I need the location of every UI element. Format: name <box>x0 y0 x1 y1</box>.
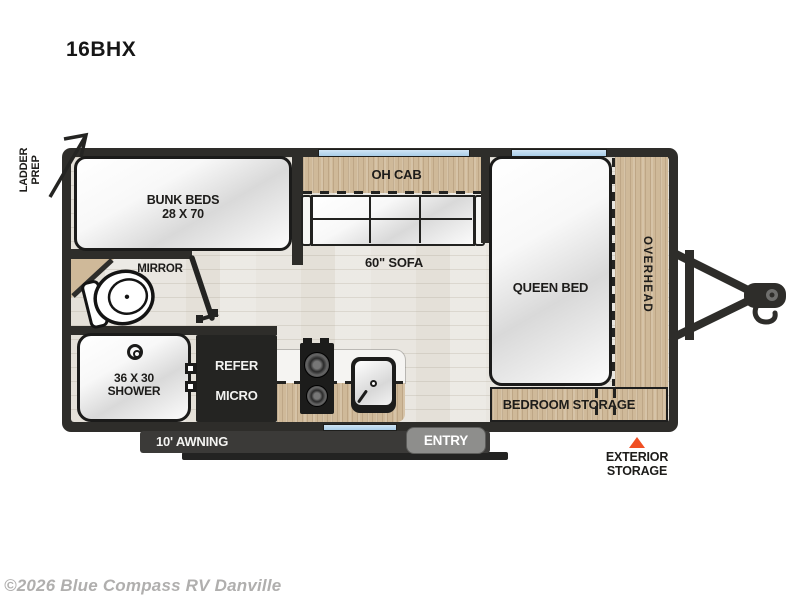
bedroom-storage: BEDROOM STORAGE <box>490 387 668 422</box>
window-sofa <box>318 149 470 157</box>
ladder-prep-label: LADDER PREP <box>18 142 46 198</box>
refer-label: REFER <box>196 359 277 374</box>
bunk-beds-line1: BUNK BEDS <box>77 193 289 207</box>
entry-door: ENTRY <box>406 427 486 454</box>
window-kitchen <box>323 424 397 431</box>
exterior-storage-line2: STORAGE <box>594 464 680 478</box>
sofa <box>311 195 475 246</box>
sofa-label: 60" SOFA <box>328 256 460 271</box>
entry-label: ENTRY <box>407 433 485 448</box>
ladder-prep-line2: PREP <box>30 142 42 198</box>
shower: 36 X 30 SHOWER <box>77 333 191 422</box>
refer-micro-cabinet: REFER MICRO <box>196 335 277 422</box>
exterior-storage-line1: EXTERIOR <box>594 450 680 464</box>
window-bedroom <box>511 149 607 157</box>
ladder-prep-line1: LADDER <box>18 142 30 198</box>
overhead-cabinet-sofa: OH CAB <box>303 157 490 193</box>
queen-bed: QUEEN BED <box>489 156 612 386</box>
queen-bed-label: QUEEN BED <box>492 281 609 296</box>
oh-cab-label: OH CAB <box>303 168 490 183</box>
watermark: ©2026 Blue Compass RV Danville <box>4 576 281 596</box>
bedroom-storage-label: BEDROOM STORAGE <box>494 398 644 413</box>
sink-icon <box>351 357 396 413</box>
hitch-icon <box>674 250 786 340</box>
mirror-label: MIRROR <box>120 263 200 276</box>
bunk-beds-line2: 28 X 70 <box>77 207 289 221</box>
overhead-label: OVERHEAD <box>631 185 653 365</box>
exterior-storage-label: EXTERIOR STORAGE <box>594 450 680 478</box>
page-title: 16BHX <box>66 38 136 62</box>
bunk-beds: BUNK BEDS 28 X 70 <box>74 156 292 251</box>
awning-label: 10' AWNING <box>156 435 228 450</box>
oh-cab-dashed-line <box>303 191 490 194</box>
exterior-storage-marker-icon <box>629 437 645 448</box>
shower-line2: SHOWER <box>80 385 188 398</box>
micro-label: MICRO <box>196 389 277 404</box>
floorplan-page: 16BHX LADDER PREP BUNK BEDS 28 X 70 MIRR… <box>0 0 800 600</box>
shower-drain-icon <box>127 344 143 360</box>
overhead-cabinet-bed: OVERHEAD <box>615 157 668 388</box>
stove-icon <box>300 343 334 414</box>
shower-line1: 36 X 30 <box>80 372 188 385</box>
